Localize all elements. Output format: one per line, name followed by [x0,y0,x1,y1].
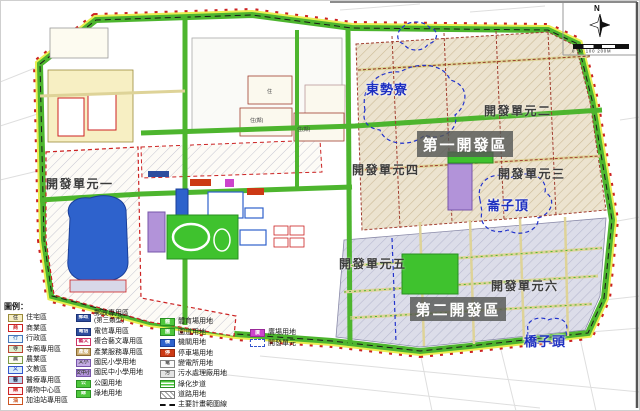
fill-swatch-icon: 郵政 [76,314,91,322]
legend-label: 廣場用地 [268,329,296,336]
legend-label: 園道用地 [178,329,206,336]
north-arrow-icon [589,13,611,39]
legend-label: 國民小學用地 [94,359,136,366]
dashedbox-swatch-icon [250,339,265,347]
fill-swatch-icon: 文小 [76,359,91,367]
legend-label: 農業區 [26,356,47,363]
legend-item: 文文教區 [8,366,68,374]
legend-item: 郵政郵政專用區(第三類型) [76,310,143,325]
settlement-label: 東勢寮 [366,79,408,98]
legend-label: 主要計畫範圍線 [178,401,227,408]
fill-swatch-icon: 電 [160,360,175,368]
fill-swatch-icon: 油 [8,397,23,405]
legend-item: 開發單元 [250,339,296,347]
legend-columns: 住住宅區商商業區行行政區寺寺廟專用區農農業區文文教區醫醫療專用區購購物中心區油加… [2,301,328,411]
fill-swatch-icon: 商 [8,324,23,332]
legend-label: 污水處理廠用地 [178,370,227,377]
legend-item: 文小國民小學用地 [76,359,143,367]
legend-label: 機關用地 [178,339,206,346]
legend-column: 體體育場用地園園道用地機機關用地停停車場用地電變電所用地污污水處理廠用地綠化步道… [160,318,227,411]
fill-swatch-icon: 廣 [250,329,265,337]
fill-swatch-icon: 住 [8,314,23,322]
legend-label: 醫療專用區 [26,377,61,384]
legend-item: 主要計畫範圍線 [160,401,227,408]
stripes-swatch-icon [160,380,175,388]
fill-swatch-icon: 農 [8,356,23,364]
settlement-label: 崙子頂 [487,195,529,214]
legend-label: 住宅區 [26,314,47,321]
fill-swatch-icon: 文 [8,366,23,374]
development-area-label: 第二開發區 [410,297,506,321]
legend-item: 購購物中心區 [8,387,68,395]
legend-label: 加油站專用區 [26,397,68,404]
legend-item: 停停車場用地 [160,349,227,357]
fill-swatch-icon: 公 [76,380,91,388]
compass: N 0 50 100 200M [563,3,637,57]
legend-column: 住住宅區商商業區行行政區寺寺廟專用區農農業區文文教區醫醫療專用區購購物中心區油加… [8,314,68,408]
fill-swatch-icon: 園 [160,328,175,336]
legend-column: 廣廣場用地開發單元 [250,329,296,350]
fill-swatch-icon: 機 [160,339,175,347]
fill-swatch-icon: 污 [160,370,175,378]
legend-label: 郵政專用區(第三類型) [94,310,129,325]
legend-item: 商商業區 [8,324,68,332]
legend-item: 產服產業服務專用區 [76,348,143,356]
legend-label: 行政區 [26,335,47,342]
legend-item: 行行政區 [8,335,68,343]
legend-label: 商業區 [26,325,47,332]
legend-label: 綠化步道 [178,381,206,388]
development-unit-label: 開發單元一 [46,175,114,192]
legend-label: 複合藝文專用區 [94,338,143,345]
legend-column: 郵政郵政專用區(第三類型)電信電信專用區藝文複合藝文專用區產服產業服務專用區文小… [76,310,143,400]
hatch-swatch-icon [160,391,175,399]
north-label: N [594,4,600,13]
zoning-map-page: 開發單元一開發單元二開發單元三開發單元四開發單元五開發單元六第一開發區第二開發區… [0,0,640,411]
development-unit-label: 開發單元五 [339,255,407,272]
legend-item: 污污水處理廠用地 [160,370,227,378]
fill-swatch-icon: 體 [160,318,175,326]
legend-item: 綠綠地用地 [76,390,143,398]
legend-item: 電信電信專用區 [76,328,143,336]
legend-item: 體體育場用地 [160,318,227,326]
legend-item: 醫醫療專用區 [8,376,68,384]
legend-item: 藝文複合藝文專用區 [76,338,143,346]
legend-label: 變電所用地 [178,360,213,367]
legend-label: 電信專用區 [94,328,129,335]
development-unit-label: 開發單元四 [352,161,420,178]
legend-item: 廣廣場用地 [250,329,296,337]
fill-swatch-icon: 綠 [76,390,91,398]
legend-label: 寺廟專用區 [26,346,61,353]
legend-item: 道路用地 [160,391,227,399]
development-unit-label: 開發單元六 [491,277,559,294]
fill-swatch-icon: 行 [8,335,23,343]
fill-swatch-icon: 藝文 [76,338,91,346]
legend-label: 道路用地 [178,391,206,398]
parcel-label: 住(鄰) [250,117,263,124]
parcel-label: 住 [267,88,272,95]
fill-swatch-icon: 文中小 [76,369,91,377]
legend: 圖例： 住住宅區商商業區行行政區寺寺廟專用區農農業區文文教區醫醫療專用區購購物中… [2,301,328,411]
dashline-swatch-icon [160,404,175,406]
legend-item: 電變電所用地 [160,360,227,368]
legend-item: 綠化步道 [160,380,227,388]
fill-swatch-icon: 停 [160,349,175,357]
legend-label: 停車場用地 [178,350,213,357]
legend-label: 公園用地 [94,380,122,387]
legend-item: 寺寺廟專用區 [8,345,68,353]
fill-swatch-icon: 醫 [8,376,23,384]
development-unit-label: 開發單元二 [484,102,552,119]
development-area-label: 第一開發區 [417,131,513,157]
legend-item: 公公園用地 [76,380,143,388]
fill-swatch-icon: 購 [8,387,23,395]
legend-item: 文中小國民中小學用地 [76,369,143,377]
settlement-label: 橋子頭 [524,331,566,350]
fill-swatch-icon: 產服 [76,348,91,356]
fill-swatch-icon: 電信 [76,328,91,336]
legend-label: 購物中心區 [26,387,61,394]
legend-label: 體育場用地 [178,318,213,325]
legend-item: 園園道用地 [160,328,227,336]
legend-label: 文教區 [26,366,47,373]
legend-item: 油加油站專用區 [8,397,68,405]
legend-label: 綠地用地 [94,390,122,397]
development-unit-label: 開發單元三 [498,165,566,182]
fill-swatch-icon: 寺 [8,345,23,353]
legend-label: 國民中小學用地 [94,369,143,376]
legend-item: 機機關用地 [160,339,227,347]
legend-label: 開發單元 [268,340,296,347]
legend-item: 住住宅區 [8,314,68,322]
scale-text: 0 50 100 200M [572,49,611,54]
parcel-label: 住(鄰) [297,126,310,133]
legend-item: 農農業區 [8,356,68,364]
legend-label: 產業服務專用區 [94,349,143,356]
